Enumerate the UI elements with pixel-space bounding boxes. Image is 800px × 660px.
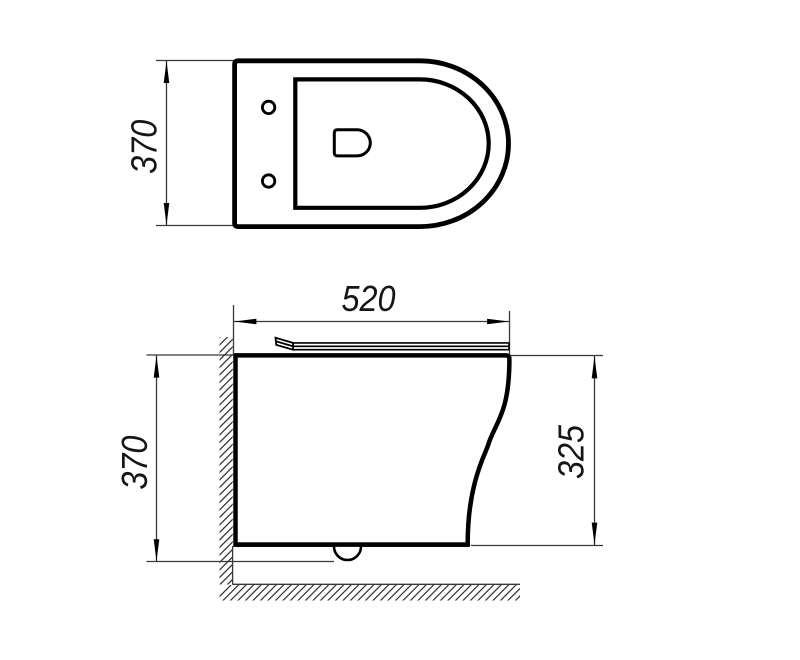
svg-text:520: 520 [341,279,395,319]
svg-text:370: 370 [115,436,155,490]
svg-text:370: 370 [125,120,165,174]
svg-text:325: 325 [552,424,592,479]
